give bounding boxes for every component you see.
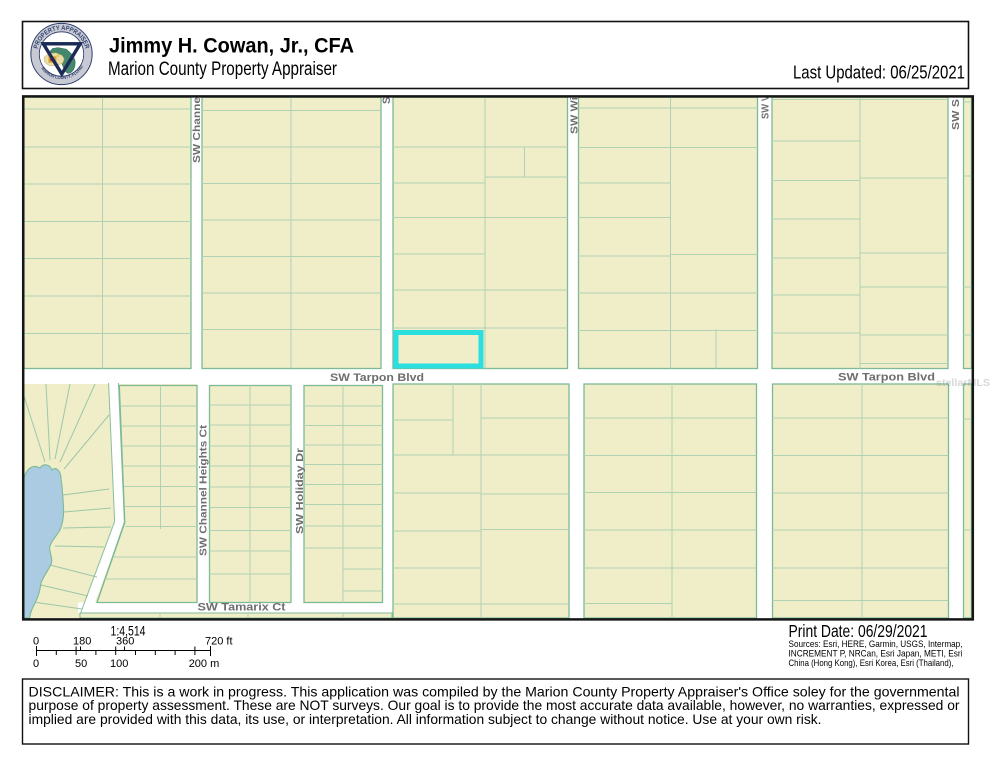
svg-text:SW Tarpon Blvd: SW Tarpon Blvd [330,372,424,384]
svg-text:100: 100 [110,658,128,670]
svg-text:implied are provided with this: implied are provided with this data, its… [29,712,822,727]
svg-text:China (Hong Kong), Esri Korea,: China (Hong Kong), Esri Korea, Esri (Tha… [789,658,954,668]
svg-text:Last Updated: 06/25/2021: Last Updated: 06/25/2021 [793,62,965,83]
svg-text:SW Holiday Dr: SW Holiday Dr [294,448,306,534]
svg-text:720 ft: 720 ft [205,636,233,648]
svg-text:SW Channel Heights Ct: SW Channel Heights Ct [198,424,210,556]
svg-text:SW Tamarix Ct: SW Tamarix Ct [198,602,286,614]
svg-text:Print Date: 06/29/2021: Print Date: 06/29/2021 [789,621,928,641]
svg-text:SW Channe: SW Channe [191,97,203,163]
svg-text:0: 0 [33,636,39,648]
svg-text:SW Wi: SW Wi [569,97,581,134]
svg-text:SW S: SW S [950,99,962,130]
svg-text:200 m: 200 m [189,658,220,670]
svg-text:Jimmy H. Cowan, Jr., CFA: Jimmy H. Cowan, Jr., CFA [109,33,354,58]
svg-text:50: 50 [75,658,87,670]
svg-text:stellarMLS: stellarMLS [936,377,990,389]
svg-text:SW V: SW V [760,95,772,119]
svg-text:INCREMENT P, NRCan, Esri Japan: INCREMENT P, NRCan, Esri Japan, METI, Es… [789,649,963,659]
svg-text:SW Tarpon Blvd: SW Tarpon Blvd [838,372,935,384]
svg-text:Marion County Property Apprais: Marion County Property Appraiser [108,58,337,80]
svg-text:360: 360 [116,636,134,648]
svg-text:0: 0 [33,658,39,670]
svg-text:180: 180 [73,636,91,648]
svg-text:Sources: Esri, HERE, Garmin, U: Sources: Esri, HERE, Garmin, USGS, Inter… [789,639,963,649]
svg-text:S: S [381,97,393,104]
